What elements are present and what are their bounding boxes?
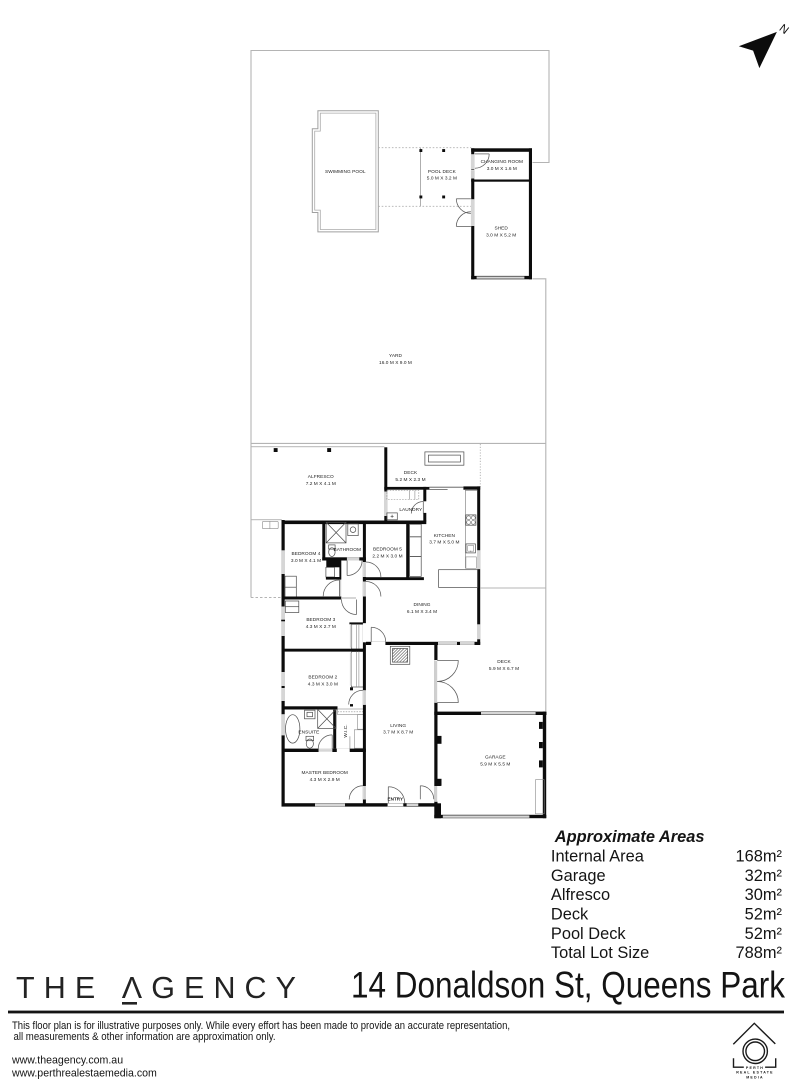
svg-text:Internal Area: Internal Area	[551, 848, 645, 866]
svg-text:PERTH: PERTH	[746, 1066, 764, 1070]
svg-text:YARD: YARD	[389, 353, 403, 359]
svg-text:4.3 M X 2.9 M: 4.3 M X 2.9 M	[310, 777, 340, 783]
svg-text:4.3 M X 2.7 M: 4.3 M X 2.7 M	[306, 624, 336, 630]
svg-text:DECK: DECK	[404, 470, 418, 476]
svg-text:ALFRESCO: ALFRESCO	[308, 474, 334, 480]
svg-text:168m²: 168m²	[736, 848, 783, 866]
svg-text:W.I.C.: W.I.C.	[343, 724, 349, 737]
svg-text:5.0 M X 3.2 M: 5.0 M X 3.2 M	[427, 176, 457, 182]
svg-text:3.7 M X 8.7 M: 3.7 M X 8.7 M	[383, 730, 413, 736]
svg-text:6.1 M X 3.4 M: 6.1 M X 3.4 M	[407, 609, 437, 615]
svg-text:all measurements & other infor: all measurements & other information are…	[14, 1031, 276, 1043]
svg-text:www.perthrealestaemedia.com: www.perthrealestaemedia.com	[11, 1068, 157, 1080]
svg-text:SHED: SHED	[494, 226, 508, 232]
svg-text:32m²: 32m²	[745, 867, 783, 885]
svg-text:MASTER BEDROOM: MASTER BEDROOM	[302, 770, 348, 776]
svg-text:5.9 M X 6.7 M: 5.9 M X 6.7 M	[489, 666, 519, 672]
svg-text:5.2 M X 2.3 M: 5.2 M X 2.3 M	[395, 477, 425, 483]
svg-text:Total Lot Size: Total Lot Size	[551, 944, 649, 962]
svg-text:5.9 M X 5.5 M: 5.9 M X 5.5 M	[480, 762, 510, 768]
svg-text:14 Donaldson St, Queens Park: 14 Donaldson St, Queens Park	[351, 965, 785, 1006]
svg-text:BEDROOM 2: BEDROOM 2	[308, 674, 337, 680]
svg-text:52m²: 52m²	[745, 906, 783, 924]
svg-text:3.0 M X 1.6 M: 3.0 M X 1.6 M	[487, 166, 517, 172]
svg-text:ENTRY: ENTRY	[387, 797, 403, 802]
svg-text:3.7 M X 5.0 M: 3.7 M X 5.0 M	[429, 540, 459, 546]
svg-text:788m²: 788m²	[736, 944, 783, 962]
svg-text:Deck: Deck	[551, 906, 589, 924]
svg-text:4.3 M X 3.0 M: 4.3 M X 3.0 M	[308, 682, 338, 688]
svg-text:3.0 M X 5.2 M: 3.0 M X 5.2 M	[486, 233, 516, 239]
svg-text:Alfresco: Alfresco	[551, 886, 610, 904]
svg-text:BEDROOM 4: BEDROOM 4	[292, 551, 321, 557]
svg-text:BEDROOM 5: BEDROOM 5	[373, 546, 402, 552]
svg-text:CHANGING ROOM: CHANGING ROOM	[481, 159, 523, 165]
svg-text:REAL ESTATE: REAL ESTATE	[736, 1071, 774, 1075]
svg-text:GARAGE: GARAGE	[485, 755, 506, 761]
svg-text:This floor plan is for illustr: This floor plan is for illustrative purp…	[12, 1020, 510, 1032]
svg-text:52m²: 52m²	[745, 925, 783, 943]
svg-text:30m²: 30m²	[745, 886, 783, 904]
svg-text:ENSUITE: ENSUITE	[298, 730, 319, 736]
svg-text:BEDROOM 3: BEDROOM 3	[306, 617, 335, 623]
svg-text:16.0 M X 9.0 M: 16.0 M X 9.0 M	[379, 360, 412, 366]
svg-text:LAUNDRY: LAUNDRY	[399, 507, 423, 513]
svg-text:THE ΛGENCY: THE ΛGENCY	[16, 971, 296, 1005]
svg-text:Approximate Areas: Approximate Areas	[554, 828, 705, 846]
svg-text:DINING: DINING	[414, 602, 431, 608]
svg-text:www.theagency.com.au: www.theagency.com.au	[11, 1054, 123, 1066]
svg-text:Garage: Garage	[551, 867, 606, 885]
svg-text:BATHROOM: BATHROOM	[334, 547, 362, 553]
svg-text:2.2 M X 3.0 M: 2.2 M X 3.0 M	[372, 554, 402, 560]
svg-text:3.0 M X 4.1 M: 3.0 M X 4.1 M	[291, 558, 321, 564]
svg-text:SWIMMING POOL: SWIMMING POOL	[325, 169, 366, 175]
svg-text:LIVING: LIVING	[390, 723, 406, 729]
svg-text:7.2 M X 4.1 M: 7.2 M X 4.1 M	[306, 481, 336, 487]
svg-text:MEDIA: MEDIA	[746, 1075, 764, 1079]
svg-text:POOL DECK: POOL DECK	[428, 169, 457, 175]
svg-text:KITCHEN: KITCHEN	[434, 533, 456, 539]
svg-text:DECK: DECK	[497, 659, 511, 665]
svg-text:Pool Deck: Pool Deck	[551, 925, 627, 943]
